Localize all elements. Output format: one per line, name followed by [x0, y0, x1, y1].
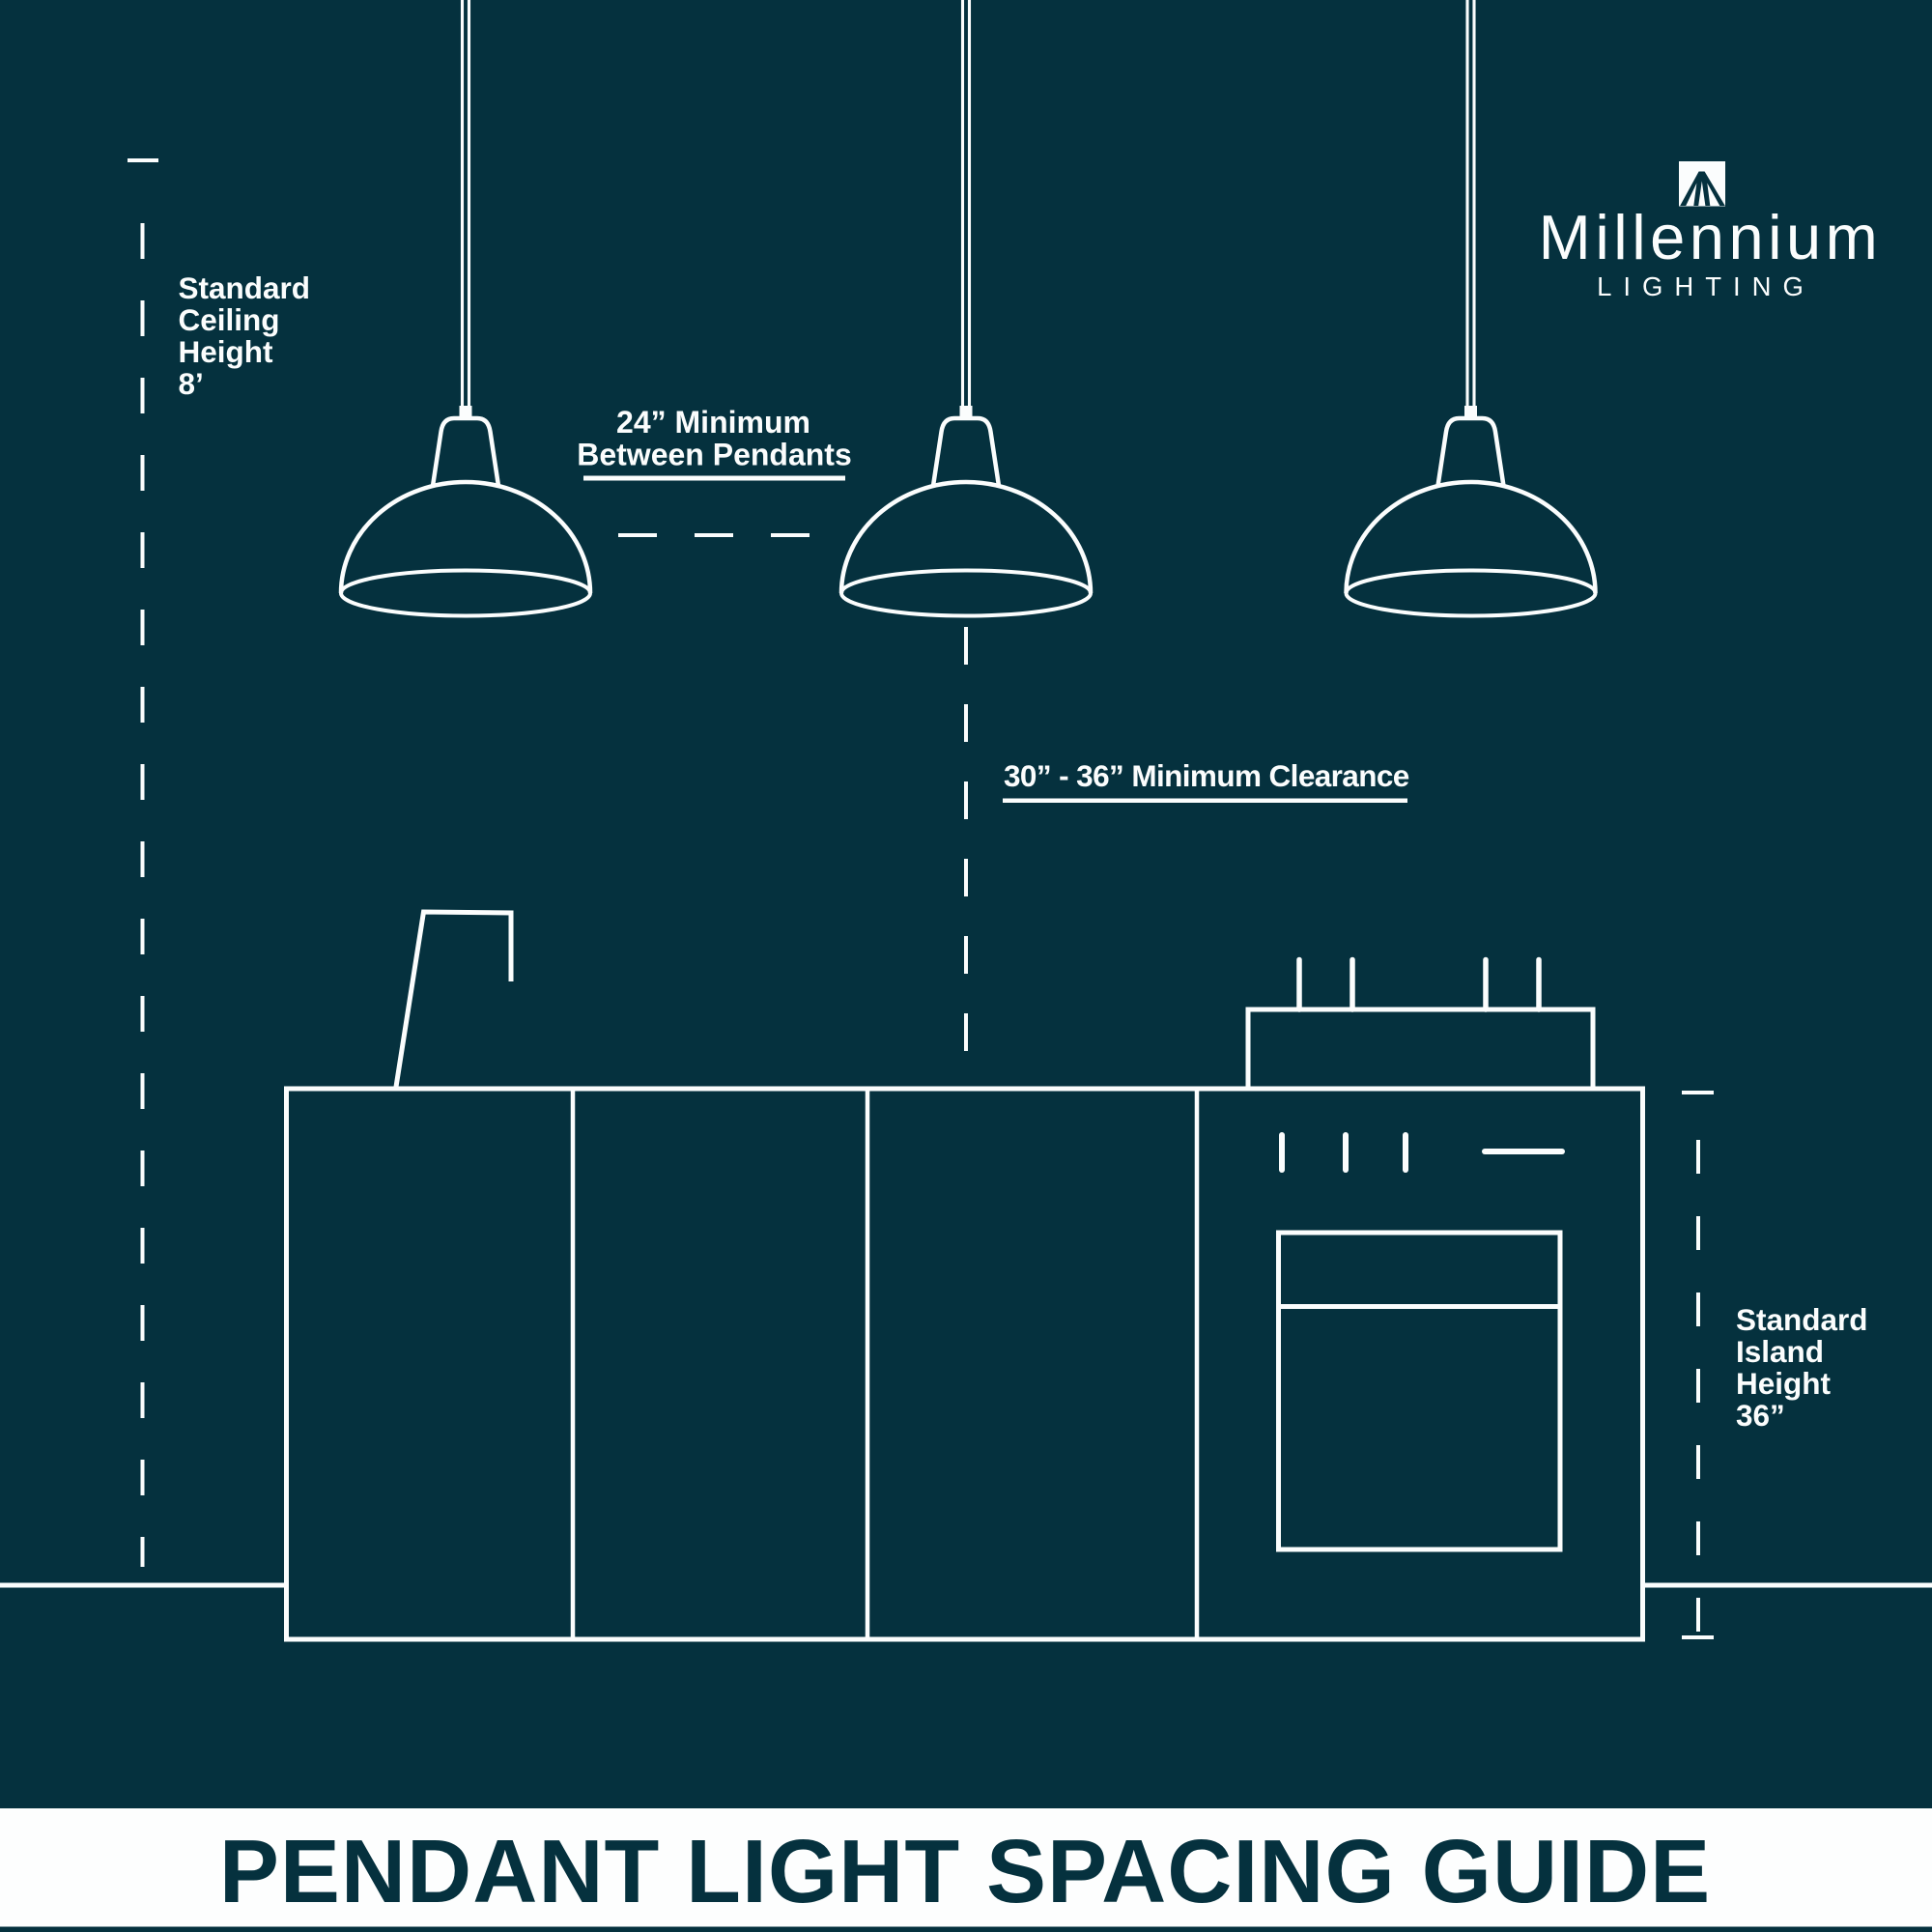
svg-text:PENDANT LIGHT SPACING GUIDE: PENDANT LIGHT SPACING GUIDE	[219, 1821, 1711, 1921]
svg-text:Between Pendants: Between Pendants	[577, 438, 852, 472]
svg-text:LIGHTING: LIGHTING	[1597, 271, 1815, 301]
svg-text:Standard: Standard	[1736, 1302, 1868, 1337]
svg-text:Island: Island	[1736, 1334, 1824, 1369]
svg-text:Height: Height	[1736, 1366, 1832, 1401]
svg-text:Standard: Standard	[179, 270, 311, 305]
svg-text:Height: Height	[179, 334, 274, 369]
svg-text:8’: 8’	[179, 366, 204, 401]
svg-text:Millennium: Millennium	[1539, 202, 1883, 272]
svg-text:24” Minimum: 24” Minimum	[616, 405, 810, 440]
svg-text:36”: 36”	[1736, 1398, 1785, 1433]
svg-text:Ceiling: Ceiling	[179, 302, 280, 337]
svg-text:30” - 36” Minimum Clearance: 30” - 36” Minimum Clearance	[1004, 758, 1409, 793]
